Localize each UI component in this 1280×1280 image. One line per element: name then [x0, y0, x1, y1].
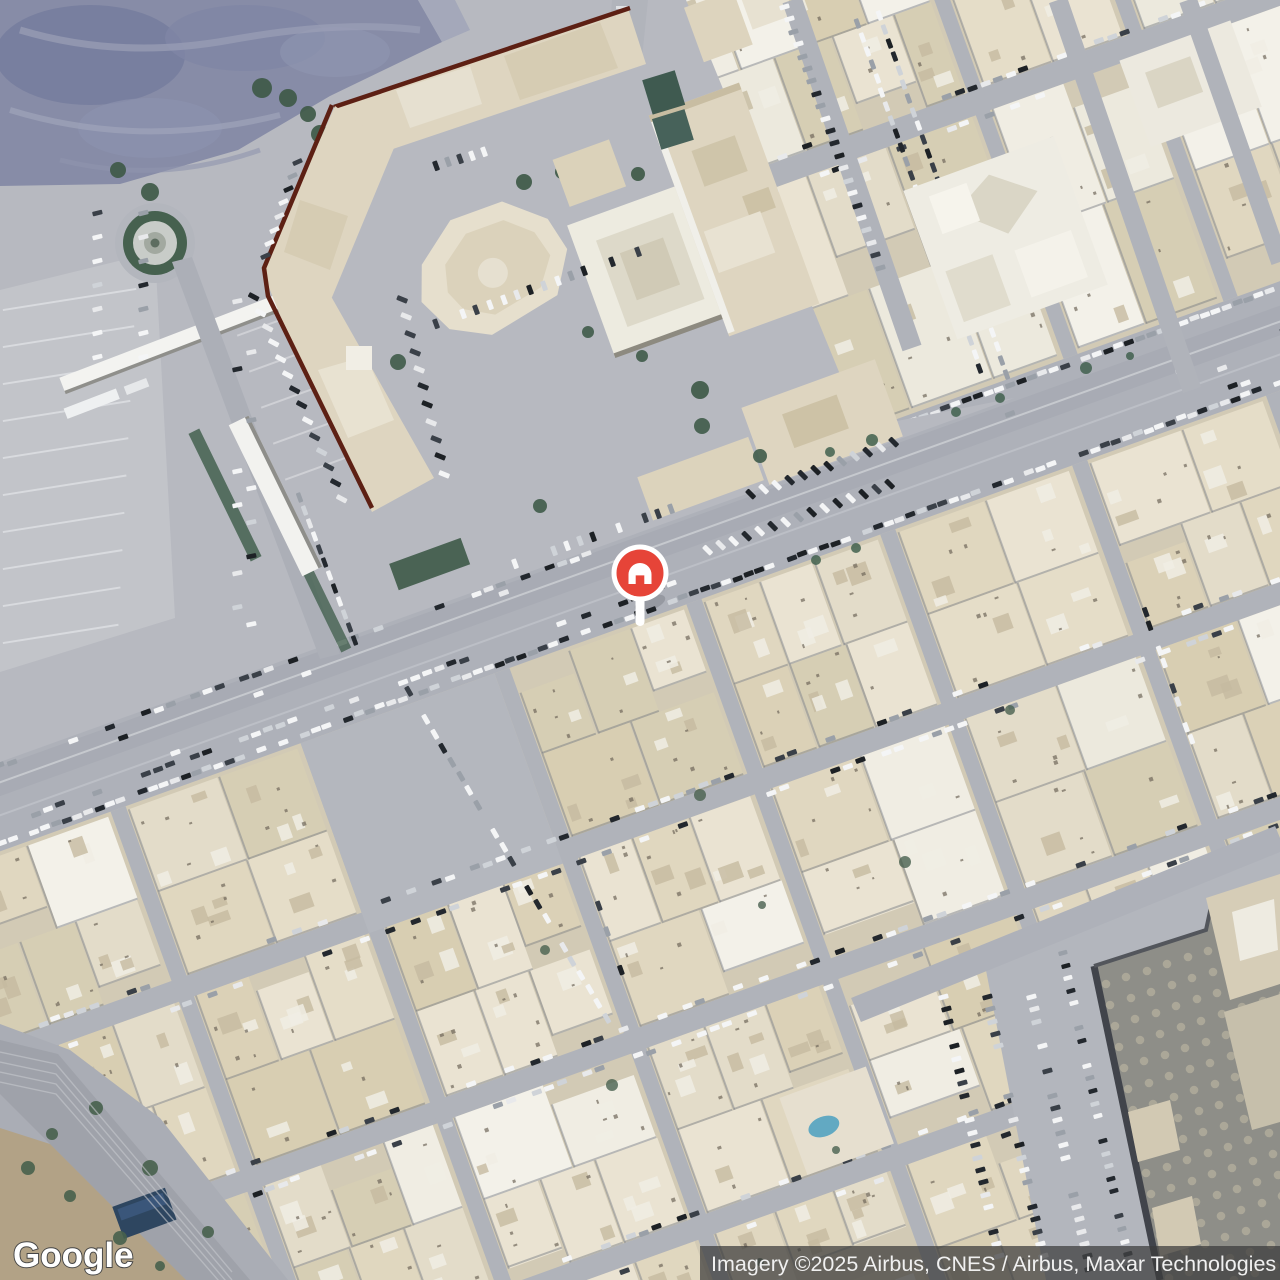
svg-text:Google: Google — [13, 1236, 134, 1275]
svg-text:Imagery ©2025 Airbus, CNES / A: Imagery ©2025 Airbus, CNES / Airbus, Max… — [711, 1252, 1276, 1276]
